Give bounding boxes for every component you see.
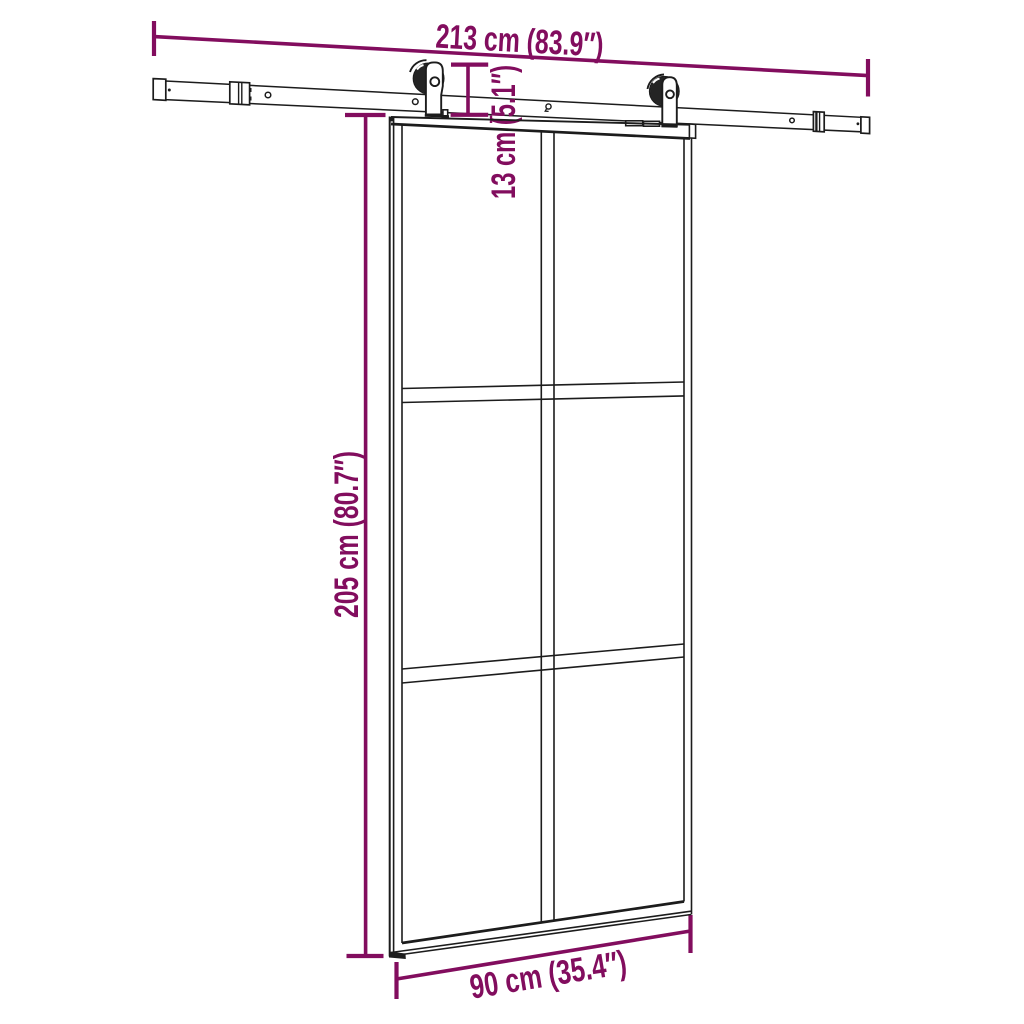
svg-text:13 cm (5.1″): 13 cm (5.1″) [485,65,523,199]
svg-text:213 cm (83.9″): 213 cm (83.9″) [435,18,605,65]
svg-text:205 cm (80.7″): 205 cm (80.7″) [328,451,366,618]
